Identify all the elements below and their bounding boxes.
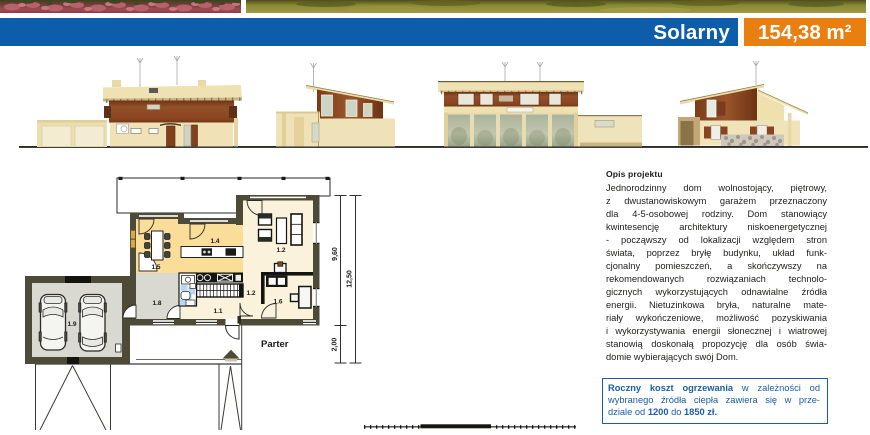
svg-text:9,60: 9,60 [332, 247, 339, 261]
svg-text:1.2: 1.2 [276, 247, 285, 254]
svg-text:Parter: Parter [261, 339, 289, 350]
svg-text:1.4: 1.4 [210, 238, 219, 245]
svg-text:1.1: 1.1 [213, 308, 222, 315]
svg-text:1.2: 1.2 [246, 290, 255, 297]
svg-text:2,00: 2,00 [332, 338, 339, 352]
svg-text:1.8: 1.8 [152, 300, 161, 307]
svg-text:1.5: 1.5 [151, 264, 160, 271]
svg-text:1.6: 1.6 [273, 299, 282, 306]
svg-text:12,50: 12,50 [347, 270, 354, 288]
svg-text:1.9: 1.9 [67, 321, 76, 328]
